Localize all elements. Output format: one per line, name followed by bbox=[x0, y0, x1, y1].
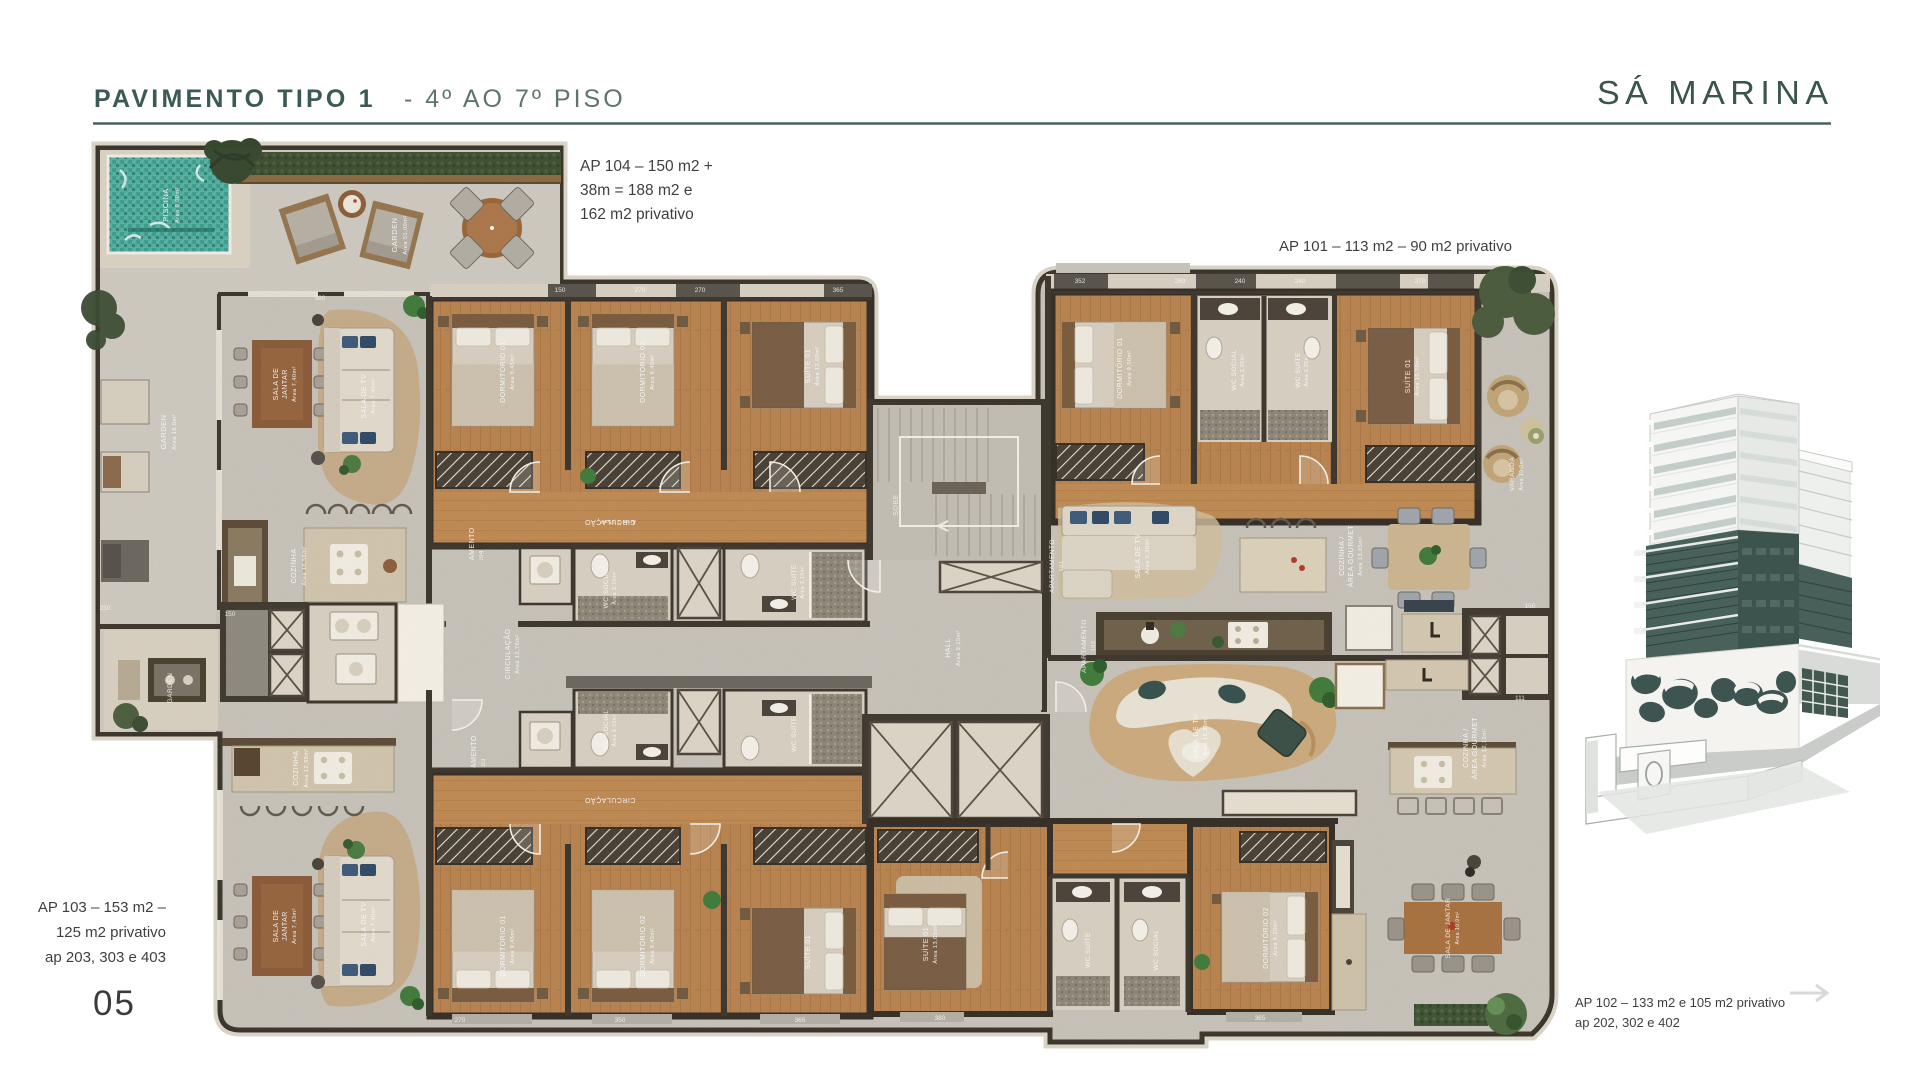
svg-text:125 m2 privativo: 125 m2 privativo bbox=[56, 924, 166, 941]
svg-text:AP 104 – 150 m2 +: AP 104 – 150 m2 + bbox=[580, 158, 713, 175]
svg-text:AP 102 – 133 m2 e 105 m2 priva: AP 102 – 133 m2 e 105 m2 privativo bbox=[1575, 995, 1785, 1010]
svg-text:- 4º AO 7º PISO: - 4º AO 7º PISO bbox=[404, 85, 626, 113]
svg-text:AP 101 – 113 m2 – 90 m2 privat: AP 101 – 113 m2 – 90 m2 privativo bbox=[1279, 238, 1512, 255]
svg-text:ap 203, 303 e 403: ap 203, 303 e 403 bbox=[45, 949, 166, 966]
svg-text:162 m2 privativo: 162 m2 privativo bbox=[580, 206, 694, 223]
svg-text:PAVIMENTO TIPO 1: PAVIMENTO TIPO 1 bbox=[94, 85, 376, 113]
svg-text:05: 05 bbox=[93, 984, 136, 1023]
svg-text:ap 202, 302 e 402: ap 202, 302 e 402 bbox=[1575, 1015, 1680, 1030]
svg-text:SÁ MARINA: SÁ MARINA bbox=[1597, 75, 1834, 112]
svg-text:38m = 188 m2 e: 38m = 188 m2 e bbox=[580, 182, 692, 199]
svg-text:AP 103 – 153 m2 –: AP 103 – 153 m2 – bbox=[38, 899, 167, 916]
